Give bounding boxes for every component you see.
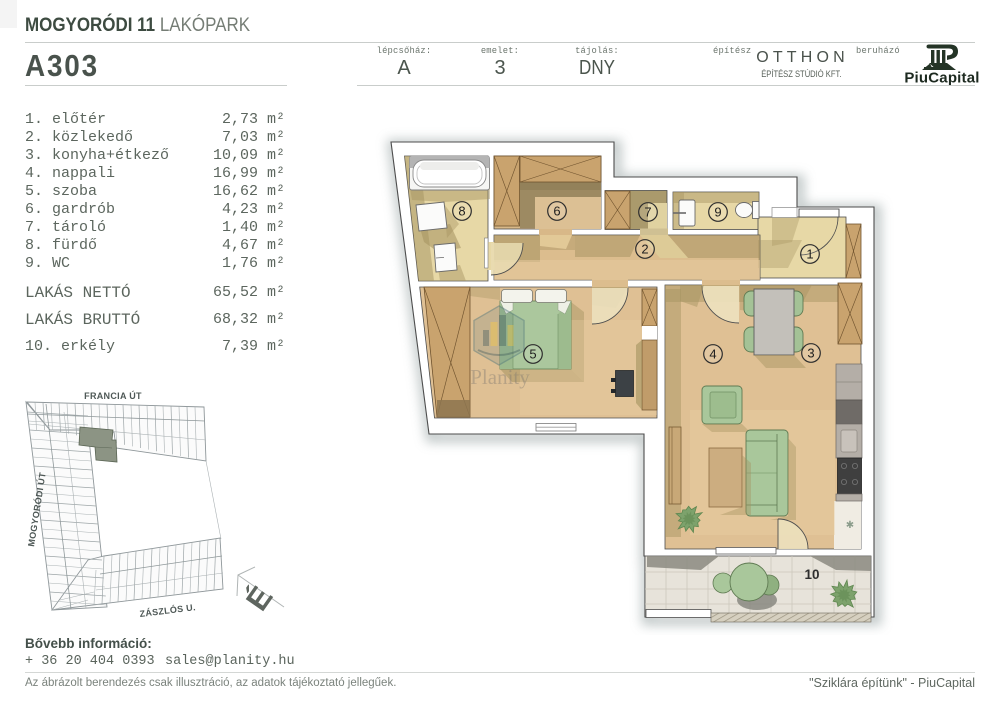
svg-text:8: 8 bbox=[458, 204, 465, 219]
svg-text:4: 4 bbox=[709, 347, 716, 362]
svg-text:PiuCapital: PiuCapital bbox=[904, 70, 979, 86]
svg-text:6: 6 bbox=[553, 204, 560, 219]
svg-text:10: 10 bbox=[804, 567, 819, 582]
svg-text:1: 1 bbox=[806, 247, 813, 262]
svg-text:É: É bbox=[239, 580, 280, 617]
svg-text:5: 5 bbox=[529, 347, 536, 362]
svg-text:7: 7 bbox=[644, 205, 651, 220]
svg-text:ZÁSZLÓS U.: ZÁSZLÓS U. bbox=[139, 601, 196, 619]
svg-text:Planity: Planity bbox=[470, 365, 530, 389]
svg-text:✱: ✱ bbox=[846, 520, 854, 531]
svg-text:FRANCIA ÚT: FRANCIA ÚT bbox=[84, 390, 142, 401]
svg-text:9: 9 bbox=[714, 205, 721, 220]
svg-text:2: 2 bbox=[641, 242, 648, 257]
svg-text:3: 3 bbox=[807, 346, 814, 361]
